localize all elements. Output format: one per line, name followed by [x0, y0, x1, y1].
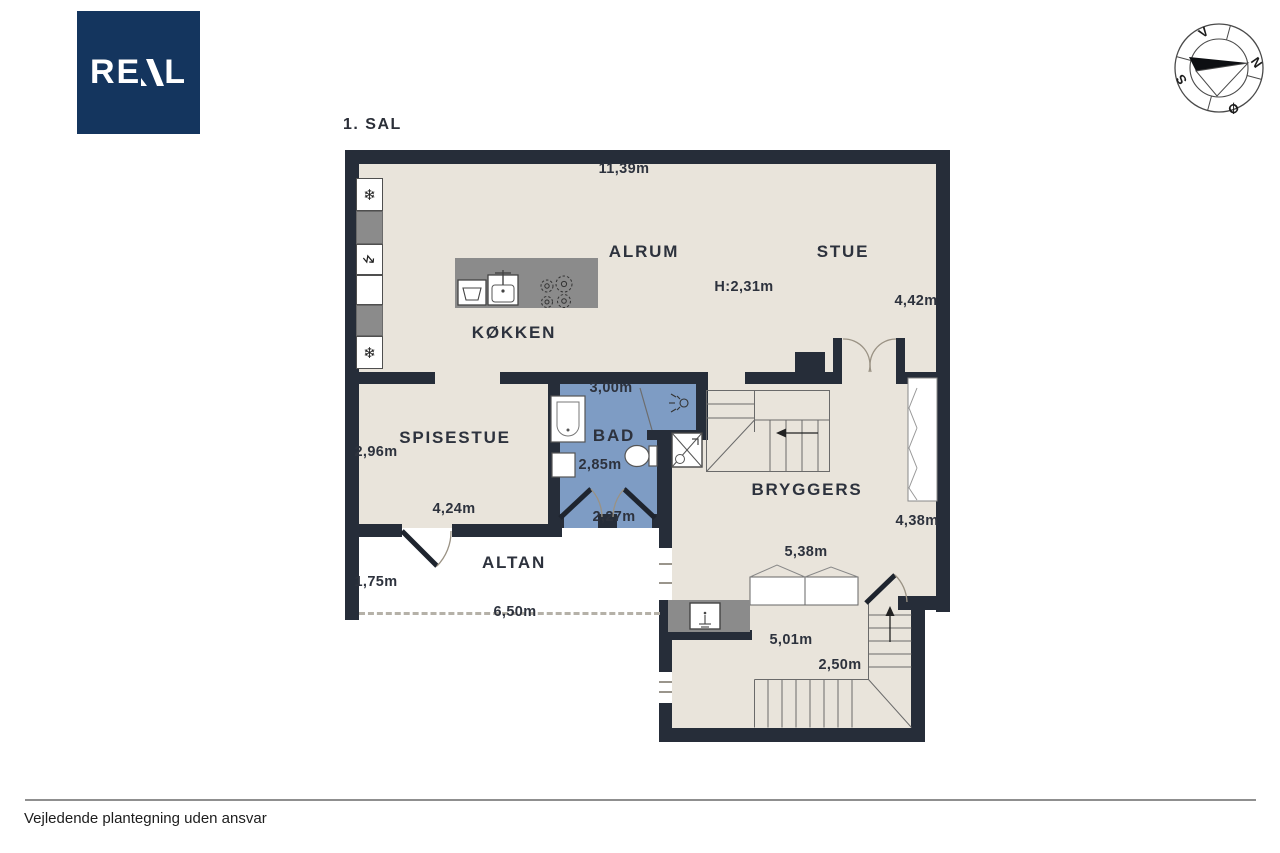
footer-disclaimer: Vejledende plantegning uden ansvar	[24, 810, 267, 827]
dim-altan-width: 6,50m	[493, 604, 536, 620]
room-label-stue: STUE	[817, 242, 870, 262]
room-label-bad: BAD	[593, 426, 635, 446]
dim-bad-bottom: 2,27m	[592, 509, 635, 525]
room-label-kokken: KØKKEN	[472, 323, 556, 343]
dim-bryggers-depth: 4,38m	[895, 513, 938, 529]
floor-plan: ❄ ↯ ❄	[0, 0, 1280, 853]
dim-stairroom-depth: 2,50m	[818, 657, 861, 673]
dim-bad-width: 3,00m	[589, 380, 632, 396]
dim-bryggers-width: 5,38m	[784, 544, 827, 560]
dim-spisestue-depth: 2,96m	[354, 444, 397, 460]
dim-altan-depth: 1,75m	[354, 574, 397, 590]
dim-ceiling-height: H:2,31m	[714, 279, 773, 295]
dim-bad-depth: 2,85m	[578, 457, 621, 473]
doors-overlay	[345, 150, 965, 750]
door-swing	[402, 531, 451, 566]
dim-stue-depth: 4,42m	[894, 293, 937, 309]
room-label-spisestue: SPISESTUE	[399, 428, 511, 448]
double-door-swing	[843, 339, 896, 372]
dim-spisestue-width: 4,24m	[432, 501, 475, 517]
dim-overall-width: 11,39m	[599, 161, 650, 177]
room-label-alrum: ALRUM	[609, 242, 679, 262]
room-label-altan: ALTAN	[482, 553, 546, 573]
door-swing	[866, 575, 907, 603]
room-label-bryggers: BRYGGERS	[751, 480, 862, 500]
footer-divider	[25, 799, 1256, 801]
dim-stairroom-width: 5,01m	[769, 632, 812, 648]
